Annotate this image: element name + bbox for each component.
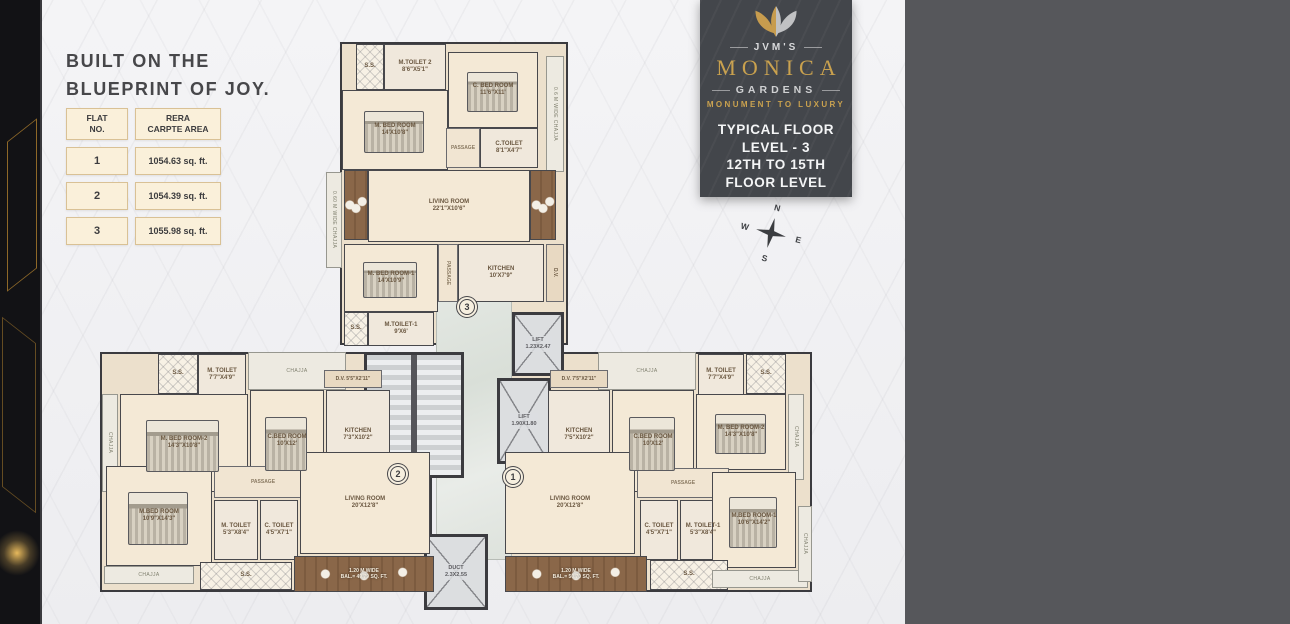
room-label: CHAJJA [636,368,657,374]
room-label: C.TOILET 8'1"X4'7" [495,141,522,155]
room-label: S.S. [683,571,694,578]
room-label: PASSAGE [445,261,451,285]
flat3-kitchen: KITCHEN 10'X7'9" [458,244,544,302]
flat1-chajja-right-b: CHAJJA [798,506,812,582]
flat1-c-toilet: C. TOILET 4'5"X7'1" [640,500,678,560]
room-label: C. BED ROOM 11'6"X11' [473,83,514,97]
room-label: M.BED ROOM-1 10'6"X14'2" [732,513,777,527]
flat-marker-3: 3 [459,299,475,315]
room-label: DUCT 2.3X2.55 [444,564,468,579]
room-label: S.S. [240,572,251,579]
room-label: CHAJJA [749,576,770,582]
room-label: C.BED ROOM 10'X12' [634,434,673,448]
flat3-ss-top: S.S. [356,44,384,90]
flat-marker-1: 1 [505,469,521,485]
flat1-dv: D.V. 7'5"X2'11" [550,370,608,388]
flat3-chajja-left: 0.60 M WIDE CHAJJA [326,172,342,268]
room-label: M. TOILET-1 5'3"X8'4" [686,523,721,537]
room-label: LIVING ROOM 20'X12'8" [345,496,385,510]
flat2-ss-bottom: S.S. [200,562,292,590]
room-label: M. TOILET 7'7"X4'9" [207,368,237,382]
room-label: PASSAGE [671,480,695,486]
flat-marker-2: 2 [390,466,406,482]
room-label: M. BED ROOM-1 14'X10'9" [368,271,415,285]
room-label: PASSAGE [451,145,475,151]
floor-plan-poster: BUILT ON THE BLUEPRINT OF JOY. FLAT NO. … [0,0,1290,624]
flat3-c-bed-room: C. BED ROOM 11'6"X11' [448,52,538,128]
flat1-ss-top: S.S. [746,354,786,394]
flat1-m-bed-room-2: M. BED ROOM-2 14'3"X10'8" [696,394,786,470]
room-label: M. BED ROOM-2 14'3"X10'8" [718,425,765,439]
room-label: M. BED ROOM-2 14'3"X10'8" [161,436,208,450]
flat2-balcony: 1.20 M WIDE BAL.= 49.79 SQ. FT. [294,556,434,592]
flat3-c-toilet: C.TOILET 8'1"X4'7" [480,128,538,168]
flat1-m-bed-room-1: M.BED ROOM-1 10'6"X14'2" [712,472,796,568]
room-label: CHAJJA [793,426,799,447]
room-label: KITCHEN 7'5"X10'2" [564,428,593,442]
room-label: 0.6 M WIDE CHAJJA [552,87,558,141]
lift-1: LIFT 1.23X2.47 [512,312,564,376]
flat3-ss-bottom: S.S. [344,312,368,346]
room-label: D.V. [552,268,558,277]
flat3-dv: D.V. [546,244,564,302]
room-label: M. TOILET 5'3"X8'4" [221,523,251,537]
room-label: M.TOILET-1 9'X6' [385,322,418,336]
flat3-m-toilet-2: M.TOILET 2 8'6"X5'1" [384,44,446,90]
room-label: C. TOILET 4'5"X7'1" [645,523,674,537]
room-label: 1.20 M WIDE BAL.= 50.70 SQ. FT. [553,568,600,580]
flat3-balcony-right [530,170,556,240]
room-label: M. TOILET 7'7"X4'9" [706,368,736,382]
room-label: D.V. 5'5"X2'11" [336,376,371,382]
room-label: CHAJJA [802,533,808,554]
room-label: KITCHEN 10'X7'9" [488,266,515,280]
flat1-chajja-bottom: CHAJJA [712,570,808,588]
room-label: CHAJJA [286,368,307,374]
flat1-chajja-top: CHAJJA [598,352,696,390]
room-label: PASSAGE [251,479,275,485]
room-label: 0.60 M WIDE CHAJJA [331,191,337,248]
flat2-c-toilet: C. TOILET 4'5"X7'1" [260,500,298,560]
room-label: D.V. 7'5"X2'11" [562,376,597,382]
room-label: CHAJJA [138,572,159,578]
flat3-passage-a: PASSAGE [446,128,480,168]
flat1-chajja-right-a: CHAJJA [788,394,804,480]
room-label: 1.20 M WIDE BAL.= 49.79 SQ. FT. [341,568,388,580]
room-label: S.S. [760,370,771,377]
flat3-m-bed-room: M. BED ROOM 14'X10'8" [342,90,448,170]
room-label: CHAJJA [107,432,113,453]
flat3-m-bed-room-1: M. BED ROOM-1 14'X10'9" [344,244,438,312]
flat3-passage-b: PASSAGE [438,244,458,302]
room-label: S.S. [364,63,375,70]
flat2-dv: D.V. 5'5"X2'11" [324,370,382,388]
flat1-living-room: LIVING ROOM 20'X12'8" [505,452,635,554]
flat2-m-toilet-b: M. TOILET 5'3"X8'4" [214,500,258,560]
room-label: M. BED ROOM 14'X10'8" [374,123,415,137]
floor-plan: LIFT 1.23X2.47LIFT 1.90X1.80DUCT 2.3X2.5… [0,0,1290,624]
room-label: C. TOILET 4'5"X7'1" [265,523,294,537]
flat2-ss-top: S.S. [158,354,198,394]
flat2-m-toilet: M. TOILET 7'7"X4'9" [198,354,246,396]
flat2-chajja-bottom: CHAJJA [104,566,194,584]
flat3-balcony-left [344,170,368,240]
room-label: LIVING ROOM 22'1"X10'6" [429,199,469,213]
room-label: KITCHEN 7'3"X10'2" [343,428,372,442]
room-label: C.BED ROOM 10'X12' [268,434,307,448]
room-label: LIVING ROOM 20'X12'8" [550,496,590,510]
flat3-chajja-right: 0.6 M WIDE CHAJJA [546,56,564,172]
room-label: M.TOILET 2 8'6"X5'1" [399,60,432,74]
flat3-m-toilet-1: M.TOILET-1 9'X6' [368,312,434,346]
flat3-living-room: LIVING ROOM 22'1"X10'6" [368,170,530,242]
flat2-living-room: LIVING ROOM 20'X12'8" [300,452,430,554]
flat1-m-toilet: M. TOILET 7'7"X4'9" [698,354,744,396]
room-label: LIFT 1.23X2.47 [524,336,551,351]
room-label: M.BED ROOM 10'9"X14'3" [139,509,179,523]
room-label: LIFT 1.90X1.80 [510,413,537,428]
room-label: S.S. [172,370,183,377]
room-label: S.S. [350,325,361,332]
flat2-m-bed-room: M.BED ROOM 10'9"X14'3" [106,466,212,566]
flat1-balcony: 1.20 M WIDE BAL.= 50.70 SQ. FT. [505,556,647,592]
